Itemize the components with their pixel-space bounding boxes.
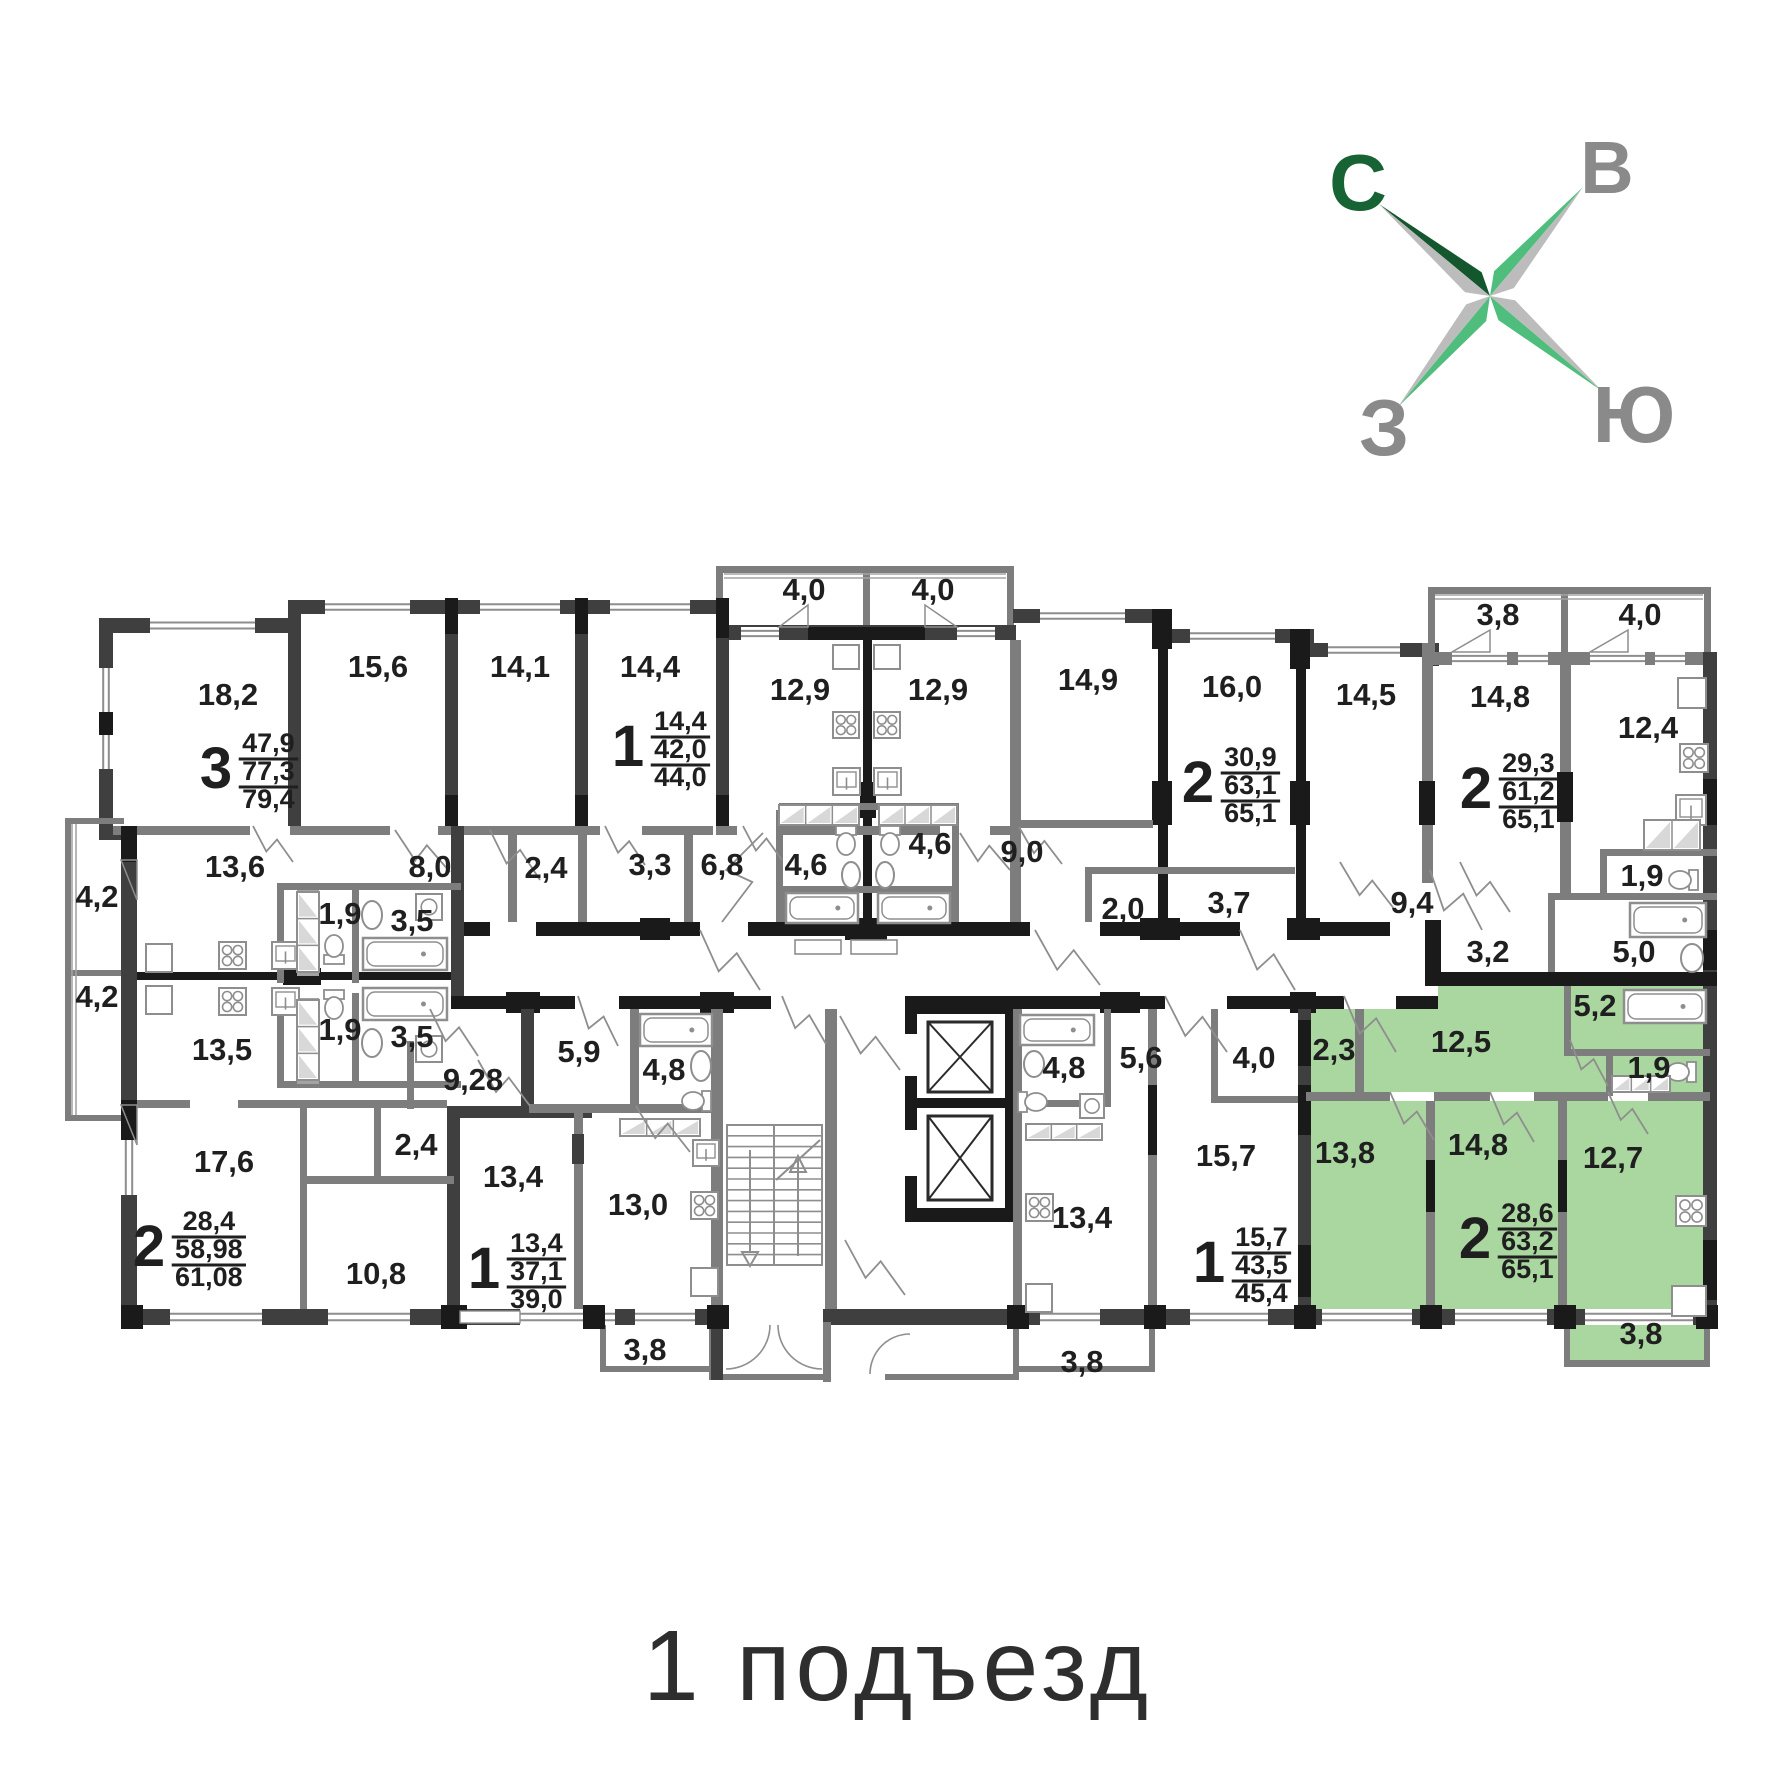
svg-text:8,0: 8,0	[408, 849, 451, 884]
svg-text:С: С	[1329, 138, 1387, 227]
svg-text:2,4: 2,4	[524, 850, 568, 885]
svg-text:2: 2	[1182, 750, 1214, 815]
svg-text:9,0: 9,0	[1000, 834, 1043, 869]
svg-text:З: З	[1359, 383, 1409, 472]
svg-text:3,8: 3,8	[1619, 1316, 1662, 1351]
svg-text:3,3: 3,3	[628, 847, 671, 882]
svg-text:29,3: 29,3	[1502, 748, 1555, 778]
svg-text:14,9: 14,9	[1058, 662, 1118, 697]
svg-text:10,8: 10,8	[346, 1256, 406, 1291]
svg-text:14,1: 14,1	[490, 649, 550, 684]
svg-text:47,9: 47,9	[242, 728, 295, 758]
svg-text:18,2: 18,2	[198, 677, 258, 712]
svg-text:9,4: 9,4	[1390, 885, 1434, 920]
svg-text:3,5: 3,5	[390, 1019, 433, 1054]
svg-text:12,9: 12,9	[770, 672, 830, 707]
svg-text:14,4: 14,4	[654, 706, 707, 736]
svg-text:1 подъезд: 1 подъезд	[643, 1610, 1153, 1722]
svg-text:3,8: 3,8	[623, 1332, 666, 1367]
svg-text:13,6: 13,6	[205, 849, 265, 884]
svg-text:12,9: 12,9	[908, 672, 968, 707]
svg-text:2: 2	[1459, 1206, 1491, 1271]
svg-text:3: 3	[200, 736, 232, 801]
svg-text:13,4: 13,4	[483, 1159, 544, 1194]
svg-text:Ю: Ю	[1593, 370, 1676, 459]
svg-text:4,2: 4,2	[75, 879, 118, 914]
svg-text:15,7: 15,7	[1235, 1222, 1288, 1252]
svg-text:5,0: 5,0	[1612, 934, 1655, 969]
svg-text:5,9: 5,9	[557, 1034, 600, 1069]
svg-text:1,9: 1,9	[1620, 858, 1663, 893]
svg-text:4,6: 4,6	[784, 847, 827, 882]
svg-text:28,4: 28,4	[183, 1206, 236, 1236]
svg-text:2,0: 2,0	[1101, 891, 1144, 926]
svg-text:2: 2	[133, 1214, 165, 1279]
svg-text:4,0: 4,0	[1618, 597, 1661, 632]
svg-text:13,4: 13,4	[510, 1228, 563, 1258]
svg-text:13,5: 13,5	[192, 1032, 252, 1067]
svg-text:3,8: 3,8	[1060, 1344, 1103, 1379]
svg-text:14,8: 14,8	[1470, 679, 1530, 714]
svg-text:5,2: 5,2	[1573, 988, 1616, 1023]
svg-text:6,8: 6,8	[700, 847, 743, 882]
svg-text:14,5: 14,5	[1336, 677, 1396, 712]
svg-text:4,6: 4,6	[908, 826, 951, 861]
svg-text:5,6: 5,6	[1119, 1040, 1162, 1075]
svg-text:12,7: 12,7	[1583, 1140, 1643, 1175]
svg-text:2,3: 2,3	[1312, 1032, 1355, 1067]
svg-text:15,7: 15,7	[1196, 1138, 1256, 1173]
svg-text:13,0: 13,0	[608, 1187, 668, 1222]
svg-text:12,4: 12,4	[1618, 710, 1679, 745]
svg-text:4,8: 4,8	[642, 1052, 685, 1087]
svg-text:1,9: 1,9	[318, 1012, 361, 1047]
svg-text:3,5: 3,5	[390, 903, 433, 938]
svg-text:4,0: 4,0	[911, 572, 954, 607]
svg-text:13,8: 13,8	[1315, 1135, 1375, 1170]
svg-text:16,0: 16,0	[1202, 669, 1262, 704]
svg-text:1,9: 1,9	[318, 896, 361, 931]
svg-text:14,4: 14,4	[620, 649, 681, 684]
svg-text:3,2: 3,2	[1466, 934, 1509, 969]
svg-text:4,2: 4,2	[75, 979, 118, 1014]
svg-text:3,7: 3,7	[1207, 885, 1250, 920]
svg-text:2: 2	[1460, 756, 1492, 821]
svg-text:4,8: 4,8	[1042, 1050, 1085, 1085]
svg-text:13,4: 13,4	[1052, 1200, 1113, 1235]
svg-text:4,0: 4,0	[782, 572, 825, 607]
svg-text:14,8: 14,8	[1448, 1127, 1508, 1162]
svg-text:2,4: 2,4	[394, 1127, 438, 1162]
svg-text:В: В	[1580, 126, 1633, 209]
svg-text:12,5: 12,5	[1431, 1024, 1491, 1059]
svg-text:17,6: 17,6	[194, 1144, 254, 1179]
svg-text:9,28: 9,28	[443, 1062, 503, 1097]
svg-text:1: 1	[468, 1236, 500, 1301]
svg-text:1: 1	[612, 714, 644, 779]
svg-text:15,6: 15,6	[348, 649, 408, 684]
svg-text:3,8: 3,8	[1476, 597, 1519, 632]
svg-text:4,0: 4,0	[1232, 1040, 1275, 1075]
svg-text:1: 1	[1193, 1230, 1225, 1295]
svg-text:28,6: 28,6	[1501, 1198, 1554, 1228]
svg-text:1,9: 1,9	[1627, 1050, 1670, 1085]
svg-text:30,9: 30,9	[1224, 742, 1277, 772]
